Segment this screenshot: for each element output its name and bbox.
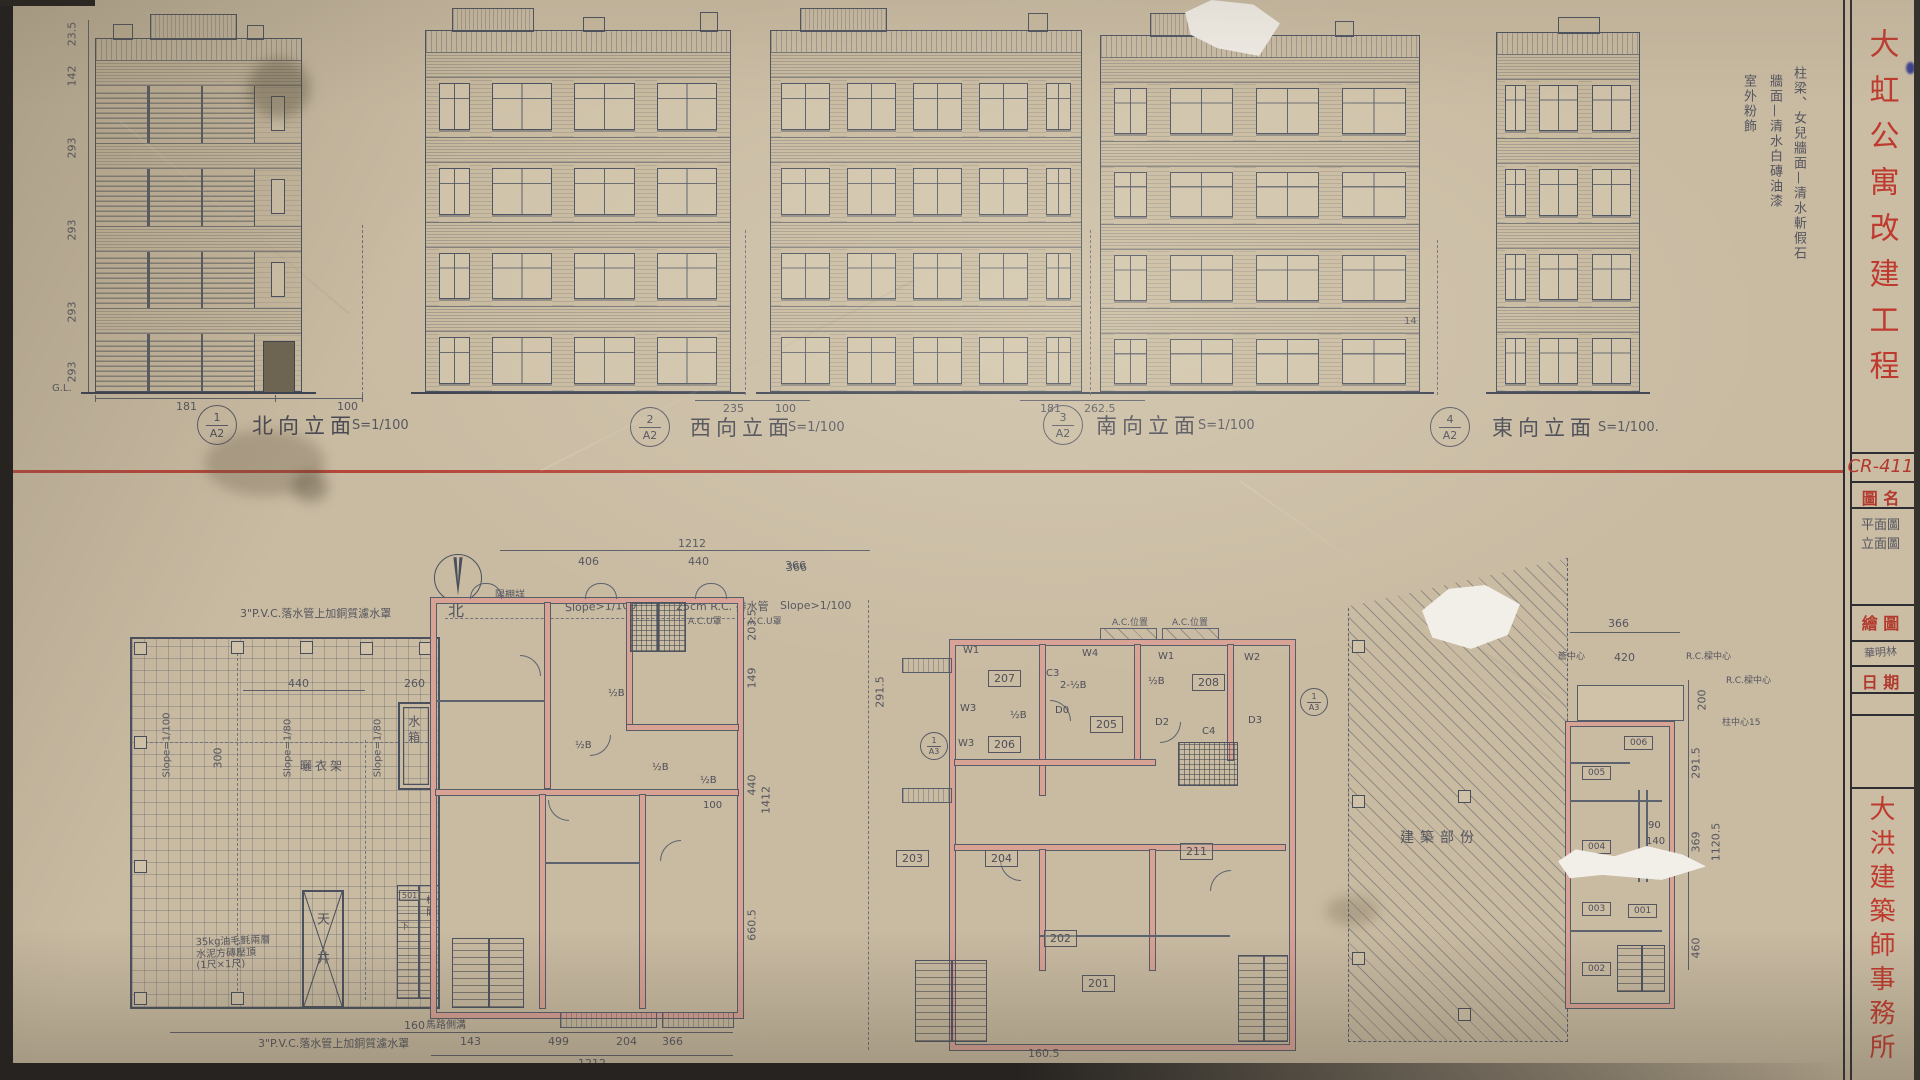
room-number: 001 [1628, 904, 1657, 918]
window [1539, 254, 1578, 300]
wall [1040, 850, 1045, 970]
floor [1497, 223, 1639, 307]
parapet [95, 38, 302, 62]
porch-slab [1578, 686, 1683, 720]
balcony-railing [96, 256, 147, 305]
roof-penthouse [150, 14, 237, 40]
room-number: 003 [1582, 902, 1611, 916]
caption-number: 3 [1060, 412, 1067, 423]
window [439, 83, 470, 130]
pier [1101, 167, 1114, 225]
pier [717, 163, 730, 222]
wall [436, 790, 738, 795]
room-number: 207 [988, 670, 1021, 687]
gnd-dim: 90 [1648, 820, 1661, 831]
water-tank-label: 水箱 [406, 715, 420, 775]
spandrel [426, 222, 730, 248]
gnd-note2: R.C.樑中心 [1686, 652, 1731, 662]
window [492, 253, 552, 300]
floor [96, 143, 301, 226]
room-number: 002 [1582, 962, 1611, 976]
drawing-sheet: 23.5 142 293 293 293 293 G.L. 181 100 23… [0, 0, 1920, 1080]
window [1342, 88, 1405, 134]
caption-title: 南向立面 [1096, 410, 1200, 440]
typ-dim-bottom: 204 [616, 1036, 637, 1049]
slit [271, 96, 285, 131]
dim-label: 293 [66, 362, 79, 383]
pier [1406, 334, 1419, 392]
caption-title: 北向立面 [252, 410, 356, 440]
orow [426, 332, 730, 391]
dim-label: 293 [66, 138, 79, 159]
pier [1319, 334, 1342, 392]
window [1114, 339, 1147, 385]
caption-number: 2 [647, 414, 654, 425]
balcony-railing [96, 90, 147, 139]
window [1170, 339, 1233, 385]
slit [271, 262, 285, 297]
floor [1101, 141, 1419, 225]
partition [545, 862, 640, 864]
window [847, 83, 896, 130]
window [781, 337, 830, 384]
gnd-note4: 柱中心15 [1722, 718, 1760, 728]
balcony-railing [203, 173, 254, 222]
window [492, 168, 552, 215]
caption-title: 東向立面 [1492, 412, 1596, 442]
spandrel [96, 308, 301, 334]
orow [426, 78, 730, 137]
elevation-partial [1496, 32, 1640, 392]
drafter-signature: 華明林 [1845, 642, 1917, 663]
window [1539, 338, 1578, 384]
pier [1071, 248, 1081, 307]
pier [896, 78, 913, 137]
pier [1233, 250, 1256, 308]
lot-line [362, 225, 363, 395]
gnd-note1: 簷中心 [1558, 652, 1585, 662]
roof-dim: 440 [288, 678, 309, 691]
typ-dim: 406 [578, 556, 599, 569]
pier [962, 163, 979, 222]
elevation-north [95, 38, 302, 392]
column [231, 641, 244, 654]
pier [1319, 167, 1342, 225]
pier [426, 163, 439, 222]
pvc-note-top: 3"P.V.C.落水管上加銅質濾水罩 [240, 608, 391, 621]
pier [1406, 250, 1419, 308]
column [231, 992, 244, 1005]
photo-edge-left [0, 0, 13, 1080]
titleblock-divider [1852, 665, 1916, 667]
gnd-dim-top: 366 [1608, 618, 1629, 631]
window [439, 337, 470, 384]
balcony-railing [150, 338, 201, 387]
window [781, 253, 830, 300]
room-number: 202 [1044, 930, 1077, 947]
window [1539, 169, 1578, 215]
titleblock-divider [1852, 714, 1916, 716]
window [1170, 172, 1233, 218]
drying-rack-label: 曬衣架 [300, 760, 345, 774]
pier [1497, 80, 1505, 138]
office-name: 大洪建築師事務所 [1845, 795, 1916, 1075]
column [134, 642, 147, 655]
dim-chain-line [88, 20, 89, 392]
door-mark: D2 [1155, 717, 1169, 728]
section-mark-circle: 1 A3 [1300, 688, 1328, 716]
photo-edge-top [0, 0, 95, 6]
section-number: 1 [931, 737, 936, 745]
room-number: 201 [1082, 975, 1115, 992]
sec-slope-note: Slope>1/100 [780, 600, 851, 613]
column-mark: C3 [1046, 668, 1059, 679]
window [1505, 169, 1525, 215]
window [913, 168, 962, 215]
finish-note-line2: 牆面—清水白磚油漆 [1766, 74, 1781, 304]
titleblock-divider [1852, 604, 1916, 606]
titleblock-divider [1852, 507, 1916, 509]
site-dim: 14 [1404, 316, 1417, 328]
orow [96, 169, 301, 226]
caption-sheet: A2 [643, 430, 658, 441]
spandrel [426, 52, 730, 78]
window-mark: W1 [963, 645, 979, 656]
pier [896, 163, 913, 222]
orow [96, 252, 301, 309]
window [439, 168, 470, 215]
project-title-text: 大虹公寓改建工程 [1859, 28, 1903, 448]
dim-line [431, 1055, 733, 1056]
balcony-railing [203, 90, 254, 139]
floor [426, 222, 730, 307]
spandrel [96, 143, 301, 169]
orow [1101, 167, 1419, 225]
ground-line [1486, 392, 1650, 394]
wall-thickness-label: ½B [700, 775, 717, 786]
office-name-text: 大洪建築師事務所 [1862, 795, 1899, 1075]
gnd-dim: 140 [1646, 836, 1665, 847]
gnd-dim-right: 200 [1696, 690, 1709, 711]
section-sheet: A3 [1309, 704, 1320, 712]
floor [1101, 224, 1419, 308]
window [1342, 172, 1405, 218]
window-mark: W2 [1244, 652, 1260, 663]
tower [254, 334, 301, 391]
pier [426, 78, 439, 137]
ac-slab [1162, 628, 1219, 640]
caption-scale: S=1/100 [788, 420, 845, 435]
pier [896, 332, 913, 391]
partition [436, 700, 545, 702]
pier [426, 332, 439, 391]
pier [1028, 163, 1045, 222]
partition [1570, 930, 1662, 932]
column [1458, 790, 1471, 803]
orow [1101, 83, 1419, 141]
window [1114, 255, 1147, 301]
dim-label: 293 [66, 302, 79, 323]
spandrel [1497, 54, 1639, 80]
pier [771, 163, 781, 222]
pier [1578, 80, 1592, 138]
pier [470, 163, 492, 222]
balcony-railing [96, 173, 147, 222]
caption-divider [1439, 427, 1461, 428]
spandrel [1101, 308, 1419, 334]
column [300, 641, 313, 654]
window [1114, 172, 1147, 218]
pier [1578, 164, 1592, 222]
balcony-railing [150, 173, 201, 222]
window [492, 337, 552, 384]
wall-thickness-label: ½B [1148, 676, 1165, 687]
stain [292, 472, 328, 502]
pier [1406, 167, 1419, 225]
stair [1238, 955, 1288, 1042]
parapet [425, 30, 731, 54]
section-number: 1 [1311, 693, 1316, 701]
pier [635, 78, 657, 137]
pier [1233, 167, 1256, 225]
window [847, 253, 896, 300]
window [1046, 83, 1071, 130]
section-mark-circle: 1 A3 [920, 732, 948, 760]
ground-line [756, 392, 1096, 394]
tower [254, 169, 301, 226]
pier [1319, 250, 1342, 308]
window [657, 253, 717, 300]
pier [1631, 333, 1639, 391]
window [1592, 338, 1631, 384]
pier [771, 248, 781, 307]
spandrel [1101, 224, 1419, 250]
pier [1101, 250, 1114, 308]
pier [771, 332, 781, 391]
balcony [560, 1012, 657, 1028]
balcony [902, 788, 952, 803]
door-mark: D0 [1055, 705, 1069, 716]
dim-label: 293 [66, 220, 79, 241]
road-note: 馬路側溝 [426, 1020, 466, 1032]
column [134, 860, 147, 873]
tower [254, 86, 301, 143]
pier [962, 248, 979, 307]
balcony [902, 658, 952, 673]
dim-label: 23.5 [66, 22, 79, 47]
elevation-south [770, 30, 1082, 392]
wall [1135, 645, 1140, 760]
pier [1497, 333, 1505, 391]
pier [552, 248, 574, 307]
column [360, 642, 373, 655]
project-title: 大虹公寓改建工程 [1845, 28, 1916, 448]
spandrel [771, 137, 1081, 163]
wall [955, 760, 1155, 765]
gnd-note3: R.C.樑中心 [1726, 676, 1771, 686]
column [1352, 795, 1365, 808]
orow [426, 248, 730, 307]
floor [1497, 307, 1639, 391]
dim-line [695, 400, 810, 401]
orow [1497, 249, 1639, 307]
caption-circle-4: 4 A2 [1430, 407, 1470, 447]
room-number: 204 [985, 850, 1018, 867]
photo-edge-right [1914, 0, 1920, 1080]
drafter-label: 繪 圖 [1845, 610, 1916, 634]
ac-slab [1100, 628, 1157, 640]
dim-line [1020, 400, 1145, 401]
window [1539, 85, 1578, 131]
pier [830, 332, 847, 391]
window [913, 253, 962, 300]
sec-dim: 160.5 [1028, 1048, 1060, 1061]
pier [470, 78, 492, 137]
room-number: 211 [1180, 843, 1213, 860]
roof-dim: 300 [212, 748, 225, 769]
bathroom-tile [630, 602, 658, 652]
wall [545, 603, 550, 788]
partition [1570, 800, 1662, 802]
spandrel [426, 137, 730, 163]
window [1342, 255, 1405, 301]
window [979, 168, 1028, 215]
typ-dim-bottom: 499 [548, 1036, 569, 1049]
door-swing [585, 583, 617, 599]
typ-dim-total: 1212 [678, 538, 706, 551]
finish-note-line1: 柱梁、女兒牆面—清水斬假石 [1790, 66, 1805, 326]
window [574, 83, 634, 130]
pier [717, 248, 730, 307]
orow [771, 78, 1081, 137]
wall-thickness-label: ½B [575, 740, 592, 751]
pier [830, 78, 847, 137]
pier [1147, 167, 1170, 225]
caption-number: 1 [214, 412, 221, 423]
roof-bulkhead [452, 8, 534, 32]
pier [635, 332, 657, 391]
torn-patch [1558, 846, 1706, 880]
tower [254, 252, 301, 309]
window [574, 337, 634, 384]
pier [470, 248, 492, 307]
pier [1319, 83, 1342, 141]
floor [1101, 57, 1419, 141]
wall [540, 795, 545, 1008]
dim-line [95, 398, 362, 399]
door-mark: D3 [1248, 715, 1262, 726]
pier [1631, 164, 1639, 222]
floor [426, 137, 730, 222]
window [657, 168, 717, 215]
roof-chimney [700, 12, 718, 32]
wall-thickness-label: 2-½B [1060, 680, 1087, 691]
typ-dim-bottom: 366 [662, 1036, 683, 1049]
window-mark: W3 [960, 703, 976, 714]
window-mark: W4 [1082, 648, 1098, 659]
orow [771, 248, 1081, 307]
typ-dim-right: 149 [746, 668, 759, 689]
slit [271, 179, 285, 214]
doorway [263, 341, 294, 393]
section-sheet: A3 [929, 748, 940, 756]
roof-plan [130, 637, 440, 1009]
caption-divider [639, 427, 661, 428]
elevation-east [1100, 35, 1420, 392]
dim-line [500, 550, 870, 551]
window [781, 83, 830, 130]
gnd-dim-right: 369 [1690, 832, 1703, 853]
balcony-railing [203, 256, 254, 305]
bathroom-tile [658, 602, 686, 652]
window [847, 168, 896, 215]
pier [1497, 249, 1505, 307]
wall [1150, 850, 1155, 970]
orow [96, 86, 301, 143]
room-number: 501 [399, 890, 420, 901]
window-mark: W3 [958, 738, 974, 749]
window [1170, 255, 1233, 301]
column [134, 736, 147, 749]
titleblock-divider [1852, 452, 1916, 454]
room-number: 006 [1624, 736, 1653, 750]
spandrel [1497, 307, 1639, 333]
pier [552, 78, 574, 137]
floor [96, 60, 301, 143]
floor [1497, 54, 1639, 138]
wall-thickness-label: ½B [1010, 710, 1027, 721]
elevation-west [425, 30, 731, 392]
pier [1526, 80, 1540, 138]
dim-line [431, 1032, 733, 1033]
pier [717, 332, 730, 391]
roof-dim: 160 [404, 1020, 425, 1033]
bathroom-tile [1178, 742, 1238, 786]
floor [1497, 138, 1639, 222]
room-number: 208 [1192, 674, 1225, 691]
window [439, 253, 470, 300]
window [1256, 88, 1319, 134]
site-dim: 181 [176, 401, 197, 414]
roof-slope: Slope=1/80 [373, 719, 384, 778]
pier [1578, 333, 1592, 391]
pier [1631, 249, 1639, 307]
roof-dim: 260 [404, 678, 425, 691]
gnd-dim-right: 460 [1690, 938, 1703, 959]
roof-slope: Slope=1/80 [283, 719, 294, 778]
finish-note-line3: 室外粉飾 [1740, 74, 1755, 184]
floor [771, 137, 1081, 222]
date-label: 日 期 [1845, 669, 1916, 693]
window [781, 168, 830, 215]
ac-note: A.C.位置 [1172, 618, 1208, 628]
pier [1406, 83, 1419, 141]
drawing-name-value: 平面圖 立面圖 [1845, 514, 1916, 552]
dim-tick [95, 395, 96, 402]
room-number: 206 [988, 736, 1021, 753]
parapet [1496, 32, 1640, 56]
window-mark: W1 [1158, 651, 1174, 662]
wall [627, 725, 738, 730]
pier [1101, 334, 1114, 392]
window [1256, 339, 1319, 385]
wall-thickness-label: ½B [652, 762, 669, 773]
window [1046, 253, 1071, 300]
balcony [662, 1012, 734, 1028]
photo-edge-bottom [0, 1063, 1845, 1080]
floor [771, 52, 1081, 137]
wall-thickness-label: ½B [608, 688, 625, 699]
